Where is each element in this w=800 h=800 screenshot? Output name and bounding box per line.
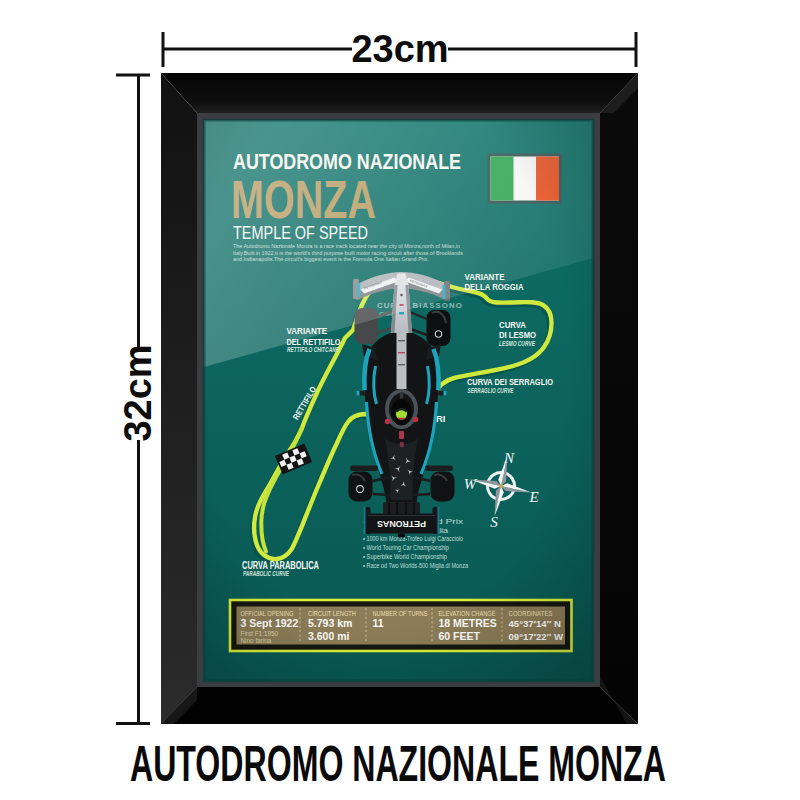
svg-text:32cm: 32cm (117, 344, 159, 441)
svg-text:23cm: 23cm (351, 28, 448, 70)
svg-text:AUTODROMO NAZIONALE MONZA: AUTODROMO NAZIONALE MONZA (130, 736, 666, 791)
